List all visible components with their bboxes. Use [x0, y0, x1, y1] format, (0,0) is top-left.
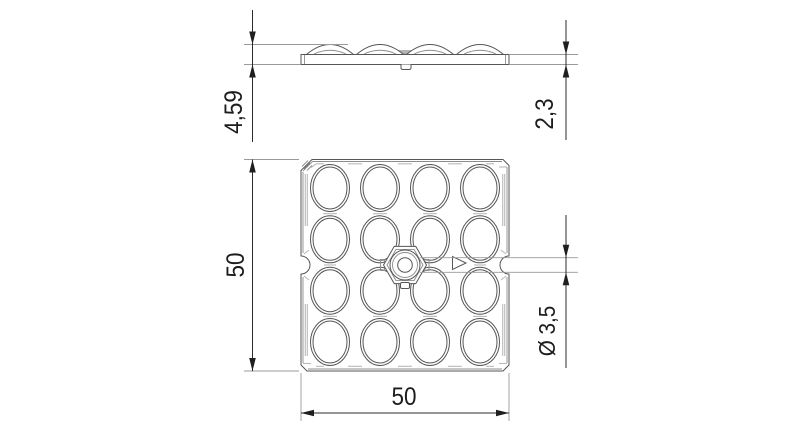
orientation-triangle-icon	[453, 257, 467, 270]
dimension-label-plate-height: 50	[222, 252, 250, 277]
lens-pocket	[361, 319, 400, 366]
arrowhead	[301, 410, 314, 417]
lens-pocket	[461, 267, 500, 314]
side-view	[301, 45, 509, 70]
lens-pocket	[411, 165, 450, 212]
drawing-canvas: 4,59 2,3	[0, 0, 800, 429]
lens-pocket	[461, 216, 500, 263]
lens-pocket	[361, 165, 400, 212]
arrowhead	[496, 410, 509, 417]
dimension-plate-width: 50	[301, 373, 509, 421]
lens-pocket	[411, 319, 450, 366]
dimension-plate-height: 50	[222, 160, 299, 372]
dimension-overall-height: 4,59	[220, 10, 348, 142]
dimension-base-thickness: 2,3	[509, 20, 578, 140]
arrowhead	[249, 32, 256, 45]
arrowhead	[249, 65, 256, 78]
dimension-label-overall-height: 4,59	[220, 90, 248, 134]
arrowhead	[563, 245, 570, 258]
lens-pocket	[311, 165, 350, 212]
plan-view	[301, 160, 509, 372]
center-hole	[398, 258, 413, 273]
dimension-label-plate-width: 50	[391, 383, 416, 411]
arrowhead	[563, 65, 570, 78]
arrowhead	[249, 358, 256, 371]
technical-drawing: 4,59 2,3	[0, 0, 800, 429]
dimension-label-center-hole: Ø 3,5	[534, 306, 560, 357]
arrowhead	[563, 42, 570, 55]
side-bottom-tab	[401, 65, 411, 70]
lens-pocket	[311, 267, 350, 314]
side-base-plate	[301, 55, 509, 65]
dimension-label-base-thickness: 2,3	[531, 98, 559, 129]
hub-bottom-tab	[401, 283, 410, 289]
lens-pocket	[461, 319, 500, 366]
arrowhead	[249, 160, 256, 173]
arrowhead	[563, 272, 570, 285]
lens-pocket	[311, 319, 350, 366]
lens-pocket	[311, 216, 350, 263]
lens-pocket	[461, 165, 500, 212]
chamfer-hatch	[302, 161, 312, 171]
